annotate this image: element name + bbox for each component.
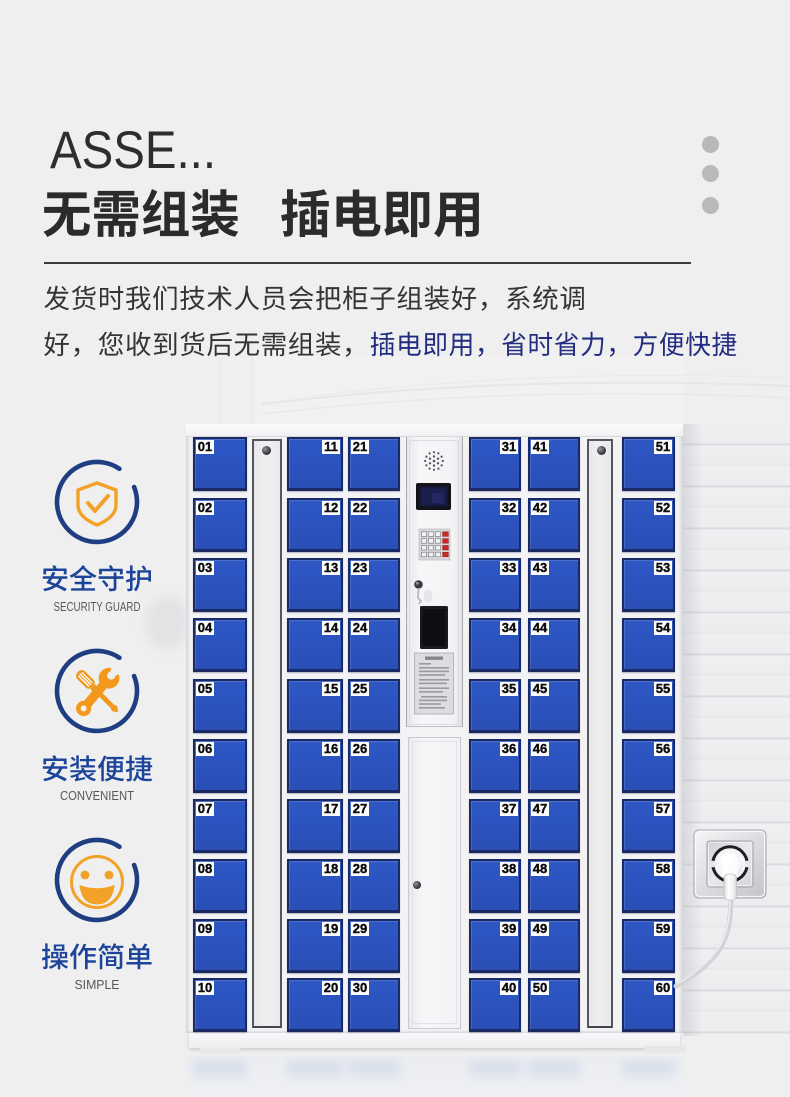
svg-text:SIMPLE: SIMPLE — [75, 978, 120, 992]
svg-text:SECURITY GUARD: SECURITY GUARD — [54, 600, 141, 614]
svg-text:CONVENIENT: CONVENIENT — [60, 789, 134, 803]
